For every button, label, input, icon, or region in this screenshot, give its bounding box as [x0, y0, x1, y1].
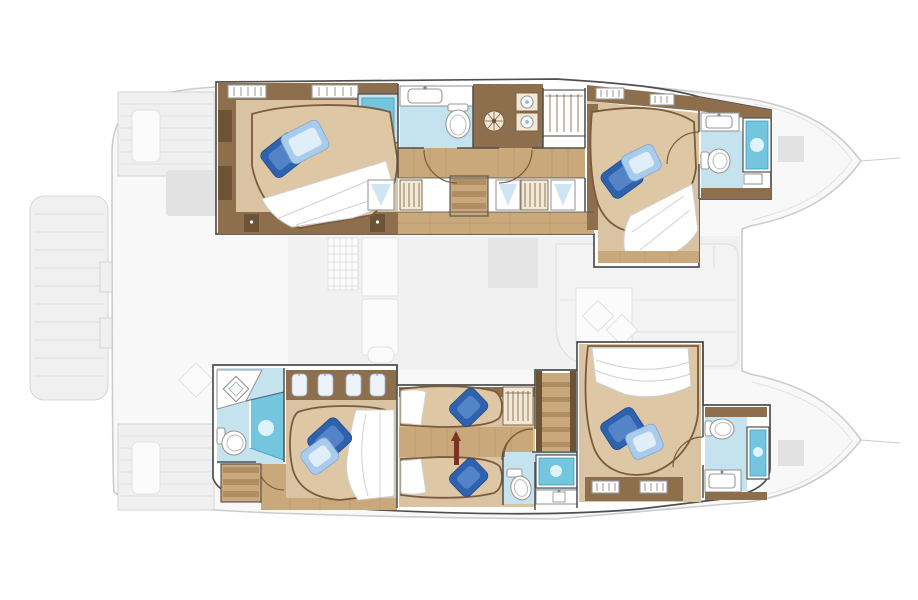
cockpit-cushion-top: [132, 110, 160, 162]
faucet-dot: [423, 86, 427, 90]
bottom-trim: [701, 188, 771, 199]
shirt-icon-1: [292, 374, 307, 396]
stairway: [450, 176, 488, 216]
washer-drum-center: [525, 100, 529, 104]
foot-locker-strip: [598, 251, 699, 263]
catamaran-floor-plan: [0, 0, 918, 600]
port-aft-cabin: [218, 83, 398, 234]
wardrobe-panel-2: [650, 94, 674, 105]
fan-hub: [492, 119, 496, 123]
shower-spray-highlight: [258, 420, 274, 436]
faucet-dot: [558, 490, 561, 493]
floor-plan-canvas: [0, 0, 918, 600]
galley-counter: [362, 238, 398, 296]
shower-spray-highlight: [753, 447, 763, 457]
stair-rail-left: [536, 371, 542, 453]
cockpit-cushion-bottom: [132, 442, 160, 494]
shower-spray-highlight: [550, 465, 562, 477]
aft-stairway: [221, 464, 261, 502]
vanity-sink: [408, 89, 442, 103]
vanity-sink: [706, 116, 732, 128]
top-trim: [705, 407, 767, 417]
berth-duvet: [346, 410, 394, 500]
cockpit-table: [166, 170, 218, 216]
ladder-pole: [454, 441, 459, 465]
shirt-icon-4: [370, 374, 385, 396]
shower-spray-highlight: [750, 138, 764, 152]
port-forward-cabin: [587, 85, 699, 263]
stern-swim-platform: [30, 196, 108, 400]
vanity-sink: [553, 492, 565, 502]
bow-locker-top: [778, 136, 804, 162]
faucet-dot: [718, 114, 721, 117]
shower-bench: [744, 174, 762, 184]
bottom-trim: [705, 492, 767, 500]
transom-step-1: [100, 262, 112, 292]
bowsprit-line-bottom: [861, 440, 900, 443]
lower-berth-head-cushion: [401, 459, 426, 494]
wardrobe-panel-1: [596, 88, 624, 99]
upper-berth-head-cushion: [401, 390, 426, 425]
vanity-sink: [709, 474, 735, 488]
faucet-dot: [721, 471, 724, 474]
transom-step-2: [100, 318, 112, 348]
bottom-floor-strip: [261, 498, 397, 510]
toilet-bowl: [710, 419, 734, 439]
stair-treads: [223, 467, 259, 497]
port-bow-bathroom: [699, 97, 771, 199]
center-stairway: [536, 371, 576, 453]
starboard-forward-cabin: [579, 344, 703, 502]
shirt-icon-3: [346, 374, 361, 396]
bow-locker-bottom: [778, 440, 804, 466]
dryer-drum-center: [525, 120, 529, 124]
nav-station-block: [488, 238, 538, 288]
port-mid-bathroom: [400, 86, 473, 148]
stair-treads: [452, 179, 486, 209]
galley-stool: [368, 347, 394, 363]
bowsprit-line-top: [861, 158, 900, 161]
stair-rail-right: [570, 371, 576, 453]
starboard-aft-cabin: [217, 368, 397, 510]
shirt-icon-2: [318, 374, 333, 396]
